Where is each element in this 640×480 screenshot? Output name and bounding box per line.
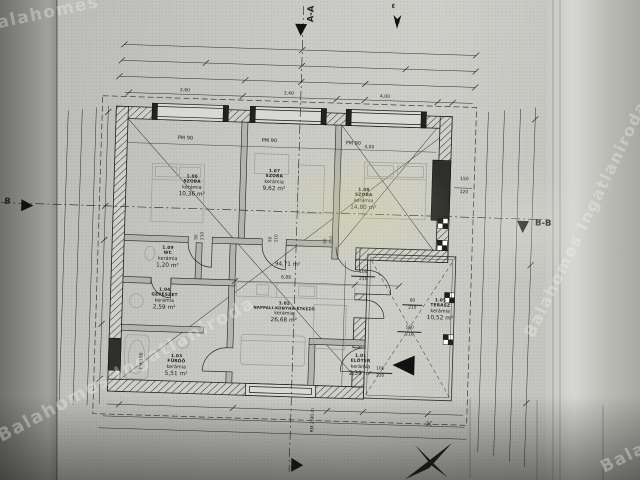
north-arrow-icon bbox=[393, 15, 401, 29]
section-a-top-marker-icon bbox=[295, 24, 307, 36]
photo-glare-2 bbox=[420, 140, 620, 310]
section-b-left-marker-icon bbox=[21, 199, 33, 211]
entrance-arrow-icon bbox=[392, 355, 415, 376]
photo-shadow bbox=[0, 395, 640, 480]
floor-plan-photo: 1.06 SZOBA kerámia 10,36 m² 1.07 SZOBA k… bbox=[0, 0, 640, 480]
